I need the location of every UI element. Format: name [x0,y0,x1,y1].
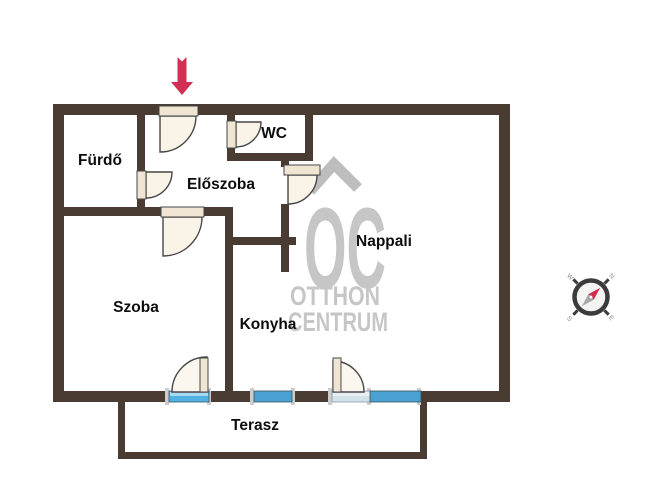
wall-wc-right [305,115,313,161]
compass-east-label: E [607,314,615,322]
label-wc: WC [261,125,287,142]
wall-bottom-seg3 [292,391,333,402]
wall-terrace-left [118,402,125,459]
terrace-door2 [333,358,364,392]
floorplan-drawing: OC OTTHON CENTRUM [0,0,666,500]
logo-line2: CENTRUM [288,307,388,337]
furdo-door-panel [137,171,146,199]
wall-outer-top [53,104,510,115]
terrace-door1 [172,357,208,392]
wall-bottom-seg4 [421,391,510,402]
wall-szoba-top-left [53,207,162,216]
szoba-door [161,207,204,256]
wall-wc-bottom [227,153,313,161]
wall-bottom-seg1 [53,391,170,402]
terrace-door2-panel [333,358,341,392]
entrance-arrow-icon [171,57,193,95]
label-terasz: Terasz [231,417,279,434]
entrance-door-panel [159,106,198,116]
window-2 [370,391,421,402]
label-szoba: Szoba [113,299,159,316]
floorplan-canvas: OC OTTHON CENTRUM [0,0,666,500]
entrance-door [159,106,198,152]
wall-szoba-konyha [225,207,233,402]
wall-outer-left [53,104,64,402]
wc-door-panel [227,121,236,148]
wall-furdo-right-upper [137,115,145,171]
wall-terrace-right [420,402,427,459]
compass-south-label: S [565,315,573,323]
wall-outer-right [499,104,510,402]
wc-door [227,121,261,148]
furdo-door [137,171,172,199]
wall-terrace-bottom [118,452,427,459]
label-furdo: Fürdő [78,152,122,169]
label-eloszoba: Előszoba [187,176,255,193]
wall-konyha-top [232,237,296,245]
terrace-door1-panel [200,358,208,392]
label-nappali: Nappali [356,233,412,250]
compass-icon: N E S W [544,251,637,344]
nappali-door-panel [284,165,320,175]
label-konyha: Konyha [240,316,297,333]
szoba-door-panel [161,207,204,217]
window-1 [254,391,292,402]
